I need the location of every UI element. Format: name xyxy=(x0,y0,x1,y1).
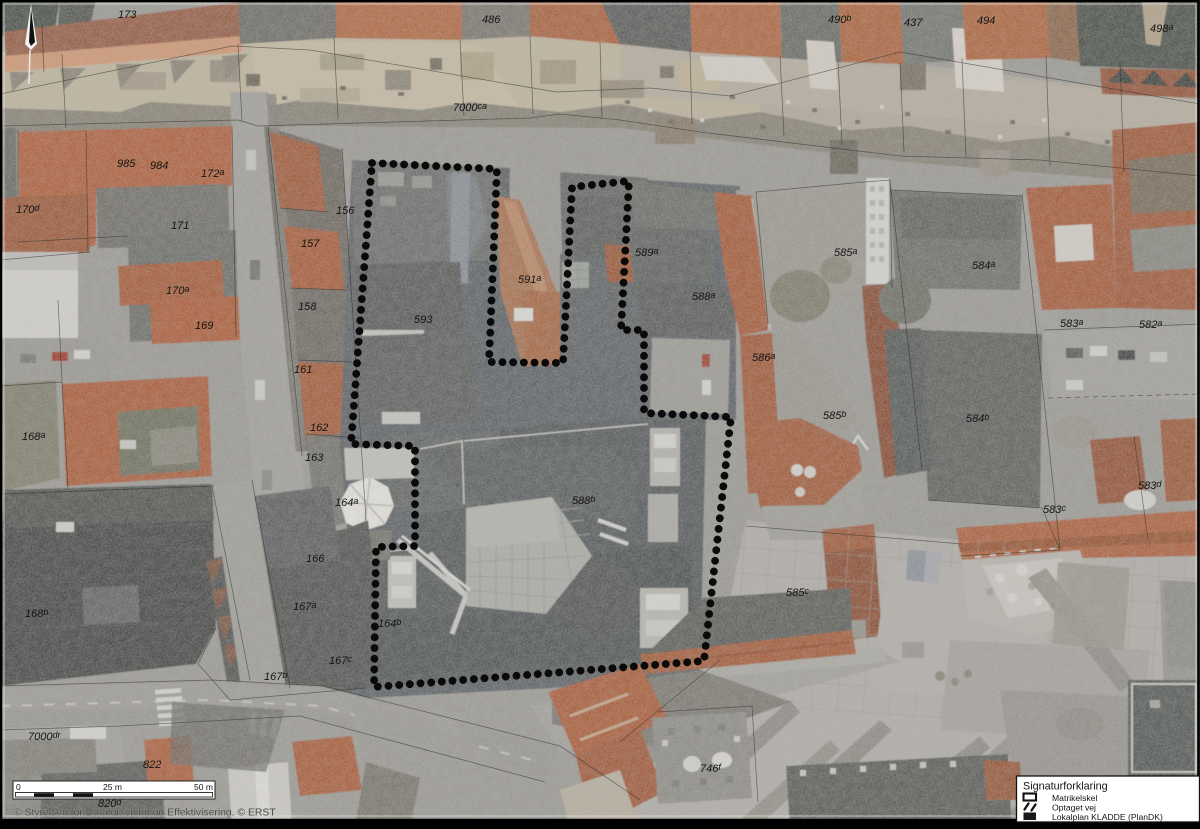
svg-text:169: 169 xyxy=(195,320,213,332)
svg-text:Optaget vej: Optaget vej xyxy=(1052,802,1096,812)
svg-text:437: 437 xyxy=(904,17,923,29)
svg-text:494: 494 xyxy=(977,15,995,27)
svg-text:50 m: 50 m xyxy=(194,782,213,792)
svg-text:25 m: 25 m xyxy=(103,782,122,792)
svg-text:162: 162 xyxy=(310,422,328,434)
svg-text:985: 985 xyxy=(117,158,136,170)
svg-text:163: 163 xyxy=(305,452,324,464)
svg-text:156: 156 xyxy=(336,205,355,217)
svg-text:984: 984 xyxy=(150,160,168,172)
svg-text:486: 486 xyxy=(482,14,501,26)
svg-text:Signaturforklaring: Signaturforklaring xyxy=(1023,781,1108,793)
svg-text:173: 173 xyxy=(118,9,137,21)
svg-text:158: 158 xyxy=(298,301,317,313)
svg-text:166: 166 xyxy=(306,553,325,565)
svg-text:171: 171 xyxy=(171,220,189,232)
svg-text:0: 0 xyxy=(16,782,21,792)
svg-text:593: 593 xyxy=(414,314,433,326)
svg-text:161: 161 xyxy=(294,364,312,376)
svg-text:© Styrelsen for Dataforsyning: © Styrelsen for Dataforsyning og Effekti… xyxy=(14,808,276,819)
svg-text:157: 157 xyxy=(301,238,320,250)
svg-text:Lokalplan KLADDE (PlanDK): Lokalplan KLADDE (PlanDK) xyxy=(1052,812,1163,822)
svg-text:822: 822 xyxy=(143,759,161,771)
